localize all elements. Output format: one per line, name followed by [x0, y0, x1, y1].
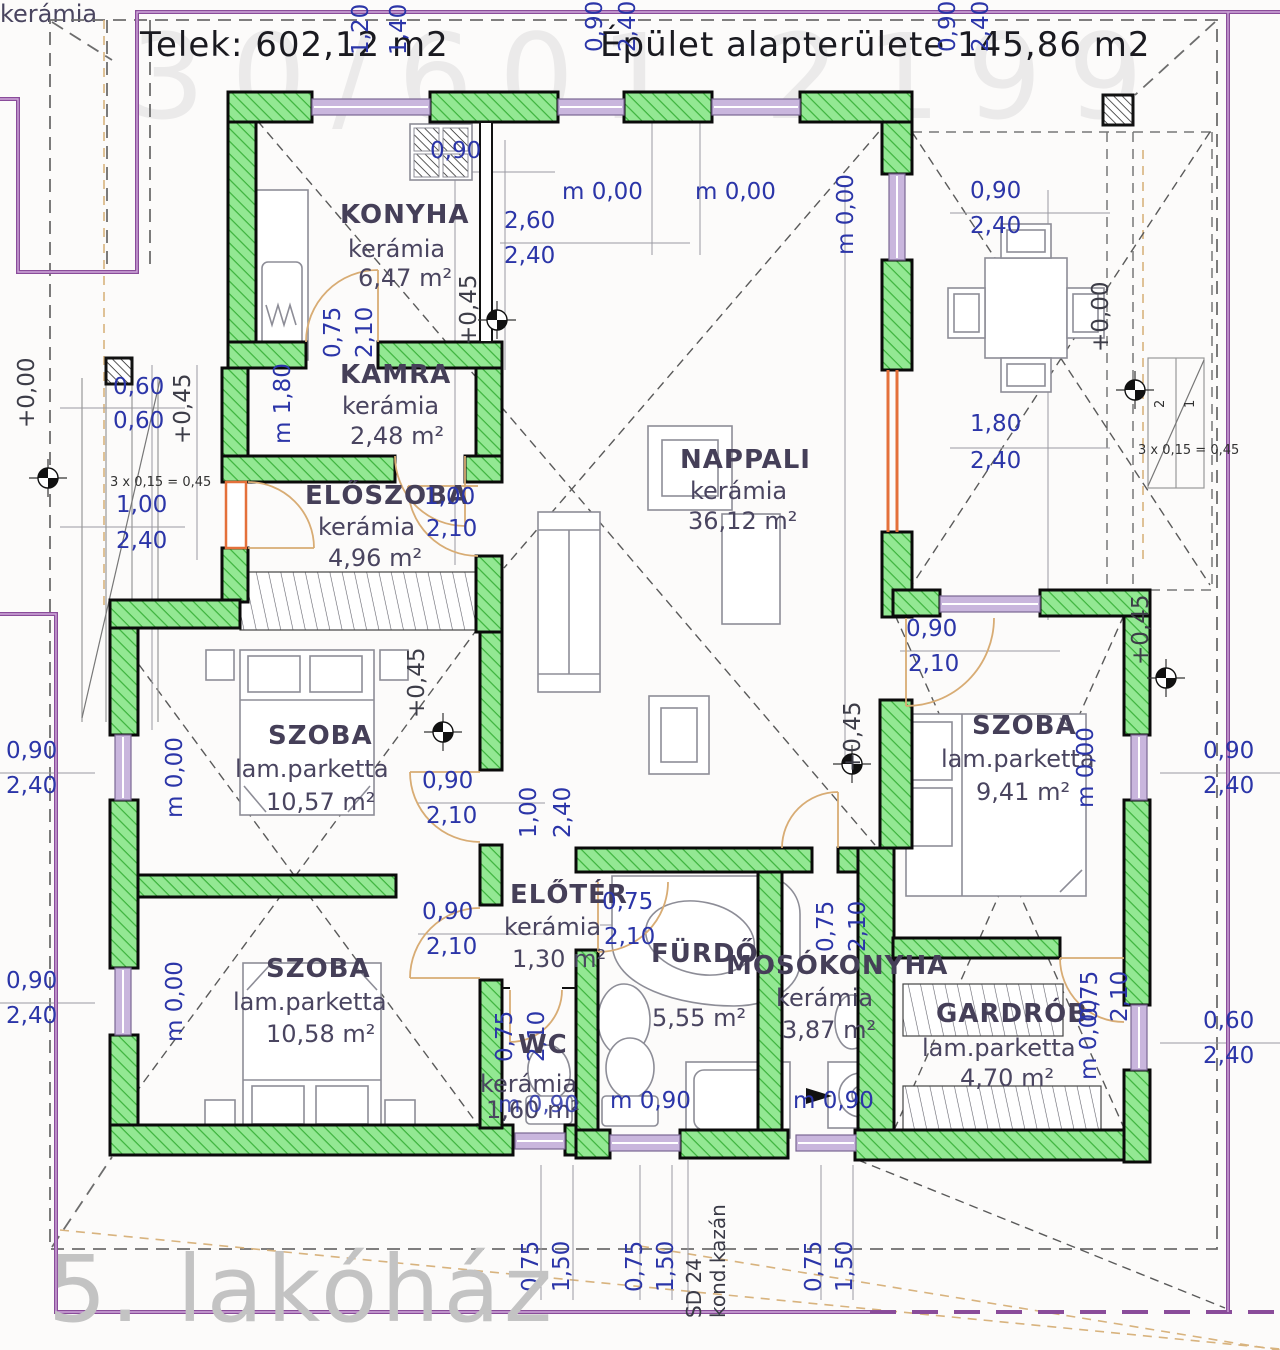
dim-corridor-h: 2,40	[552, 787, 575, 838]
room-gardrob-floor: lam.parketta	[922, 1036, 1076, 1060]
room-kamra-area: 2,48 m²	[350, 424, 444, 448]
dim-wc-sill: m 0,90	[498, 1094, 579, 1117]
room-mosokonyha-name: MOSÓKONYHA	[726, 953, 948, 979]
dim-top-window1-w: 0,90	[584, 1, 607, 52]
dim-bottom-2b: 1,50	[655, 1241, 678, 1292]
level-gardrob: m 0,00	[1078, 999, 1101, 1080]
dim-furdo-door-w: 0,75	[602, 891, 653, 914]
room-szoba2-name: SZOBA	[266, 956, 371, 982]
dim-left-window2-h: 2,40	[6, 1005, 57, 1028]
dim-kamra-sill: m 1,80	[272, 363, 295, 444]
dim-left-window2-w: 0,90	[6, 970, 57, 993]
dim-entry-1: 0,60	[113, 376, 164, 399]
dim-terrace-door-w: 1,80	[970, 413, 1021, 436]
level-entry-porch: +0,45	[172, 374, 195, 444]
room-nappali-floor: kerámia	[690, 479, 787, 503]
level-szoba3: m 0,00	[1075, 727, 1098, 808]
dim-top-1: 1,20	[350, 4, 373, 55]
dim-szoba1-door-w: 0,90	[422, 770, 473, 793]
room-szoba3-area: 9,41 m²	[976, 780, 1070, 804]
step-number-1: 1	[1184, 400, 1197, 408]
level-top-2: m 0,00	[695, 181, 776, 204]
room-kamra-floor: kerámia	[342, 394, 439, 418]
level-terrace: +0,00	[1090, 282, 1113, 352]
dim-szoba3-door-h: 2,10	[908, 653, 959, 676]
dim-top-window2-w: 0,90	[937, 1, 960, 52]
room-mosokonyha-floor: kerámia	[776, 986, 873, 1010]
dim-right-window2-h: 2,40	[1203, 1045, 1254, 1068]
room-gardrob-name: GARDRÓB	[936, 1001, 1088, 1027]
project-title: 5. lakóház	[48, 1244, 556, 1336]
dim-right-window1-w: 0,90	[1203, 740, 1254, 763]
dim-right-window2-w: 0,60	[1203, 1010, 1254, 1033]
dim-furdo-door-h: 2,10	[604, 926, 655, 949]
building-area-label: Épület alapterülete 145,86 m2	[600, 28, 1151, 62]
level-szoba1: m 0,00	[164, 737, 187, 818]
level-entry-ground: +0,00	[16, 358, 39, 428]
room-wc-name: WC	[518, 1032, 568, 1058]
dim-terrace-window-w: 0,90	[970, 180, 1021, 203]
dim-top-window1-h: 2,40	[617, 1, 640, 52]
room-eloszoba-area: 4,96 m²	[328, 546, 422, 570]
dim-konyha-h: 2,40	[504, 245, 555, 268]
level-hall-1: +0,45	[406, 648, 429, 718]
dim-left-window1-h: 2,40	[6, 775, 57, 798]
dim-mosokonyha-door-w: 0,75	[815, 901, 838, 952]
room-konyha-area: 6,47 m²	[358, 266, 452, 290]
dim-bottom-3a: 0,75	[803, 1241, 826, 1292]
dim-top-window2-h: 2,40	[970, 1, 993, 52]
room-eloszoba-floor: kerámia	[318, 515, 415, 539]
room-szoba1-area: 10,57 m²	[266, 790, 375, 814]
room-gardrob-area: 4,70 m²	[960, 1066, 1054, 1090]
dim-terrace-window-h: 2,40	[970, 215, 1021, 238]
level-konyha: +0,45	[458, 275, 481, 345]
steps-formula-right: 3 x 0,15 = 0,45	[1138, 444, 1239, 457]
dim-konyha-w: 2,60	[504, 210, 555, 233]
dim-entry-door-w: 1,00	[116, 494, 167, 517]
steps-formula-left: 3 x 0,15 = 0,45	[110, 476, 211, 489]
dim-top-2: 1,40	[388, 4, 411, 55]
dim-mosokonyha-sill: m 0,90	[793, 1090, 874, 1113]
level-right-wall: +0,45	[1130, 595, 1153, 665]
room-nappali-name: NAPPALI	[680, 447, 811, 473]
dim-wc-door-w: 0,75	[494, 1011, 517, 1062]
dim-corridor-w: 1,00	[518, 787, 541, 838]
level-center: +0,45	[842, 702, 865, 772]
room-szoba2-area: 10,58 m²	[266, 1022, 375, 1046]
floorplan-canvas: 30/601 2199	[0, 0, 1280, 1350]
room-nappali-area: 36,12 m²	[688, 509, 797, 533]
room-kamra-name: KAMRA	[340, 362, 451, 388]
dim-szoba2-door-w: 0,90	[422, 901, 473, 924]
dim-gardrob-door-h: 2,10	[1109, 971, 1132, 1022]
room-szoba1-name: SZOBA	[268, 723, 373, 749]
level-szoba2: m 0,00	[164, 961, 187, 1042]
dim-szoba1-door-h: 2,10	[426, 805, 477, 828]
level-nappali-wall: m 0,00	[835, 174, 858, 255]
dim-bottom-2a: 0,75	[624, 1241, 647, 1292]
dim-mosokonyha-door-h: 2,10	[847, 901, 870, 952]
dim-kitchen-window: 0,90	[430, 140, 481, 163]
dim-szoba3-door-w: 0,90	[906, 618, 957, 641]
room-eloter-area: 1,30 m²	[512, 947, 606, 971]
boiler-type-label: kond.kazán	[708, 1204, 728, 1318]
dim-bottom-3b: 1,50	[834, 1241, 857, 1292]
room-eloter-floor: kerámia	[504, 915, 601, 939]
room-furdo-area: 5,55 m²	[652, 1006, 746, 1030]
dim-entry-door-h: 2,40	[116, 530, 167, 553]
boiler-model-label: SD 24	[684, 1258, 704, 1318]
dim-konyha-door-h: 2,10	[354, 307, 377, 358]
dim-terrace-door-h: 2,40	[970, 450, 1021, 473]
dim-konyha-door-w: 0,75	[322, 307, 345, 358]
dim-szoba2-door-h: 2,10	[426, 936, 477, 959]
room-szoba3-name: SZOBA	[972, 713, 1077, 739]
dim-furdo-sill: m 0,90	[610, 1090, 691, 1113]
dim-entry-2: 0,60	[113, 410, 164, 433]
level-top-1: m 0,00	[562, 181, 643, 204]
room-mosokonyha-area: 3,87 m²	[782, 1018, 876, 1042]
room-konyha-floor: kerámia	[348, 237, 445, 261]
dim-right-window1-h: 2,40	[1203, 775, 1254, 798]
room-szoba2-floor: lam.parketta	[233, 990, 387, 1014]
dim-left-window1-w: 0,90	[6, 740, 57, 763]
dim-eloszoba-door-w: 1,00	[424, 486, 475, 509]
dim-eloszoba-door-h: 2,10	[426, 518, 477, 541]
room-konyha-name: KONYHA	[340, 202, 470, 228]
room-szoba3-floor: lam.parketta	[941, 747, 1095, 771]
room-szoba1-floor: lam.parketta	[235, 757, 389, 781]
step-number-2: 2	[1154, 400, 1167, 408]
